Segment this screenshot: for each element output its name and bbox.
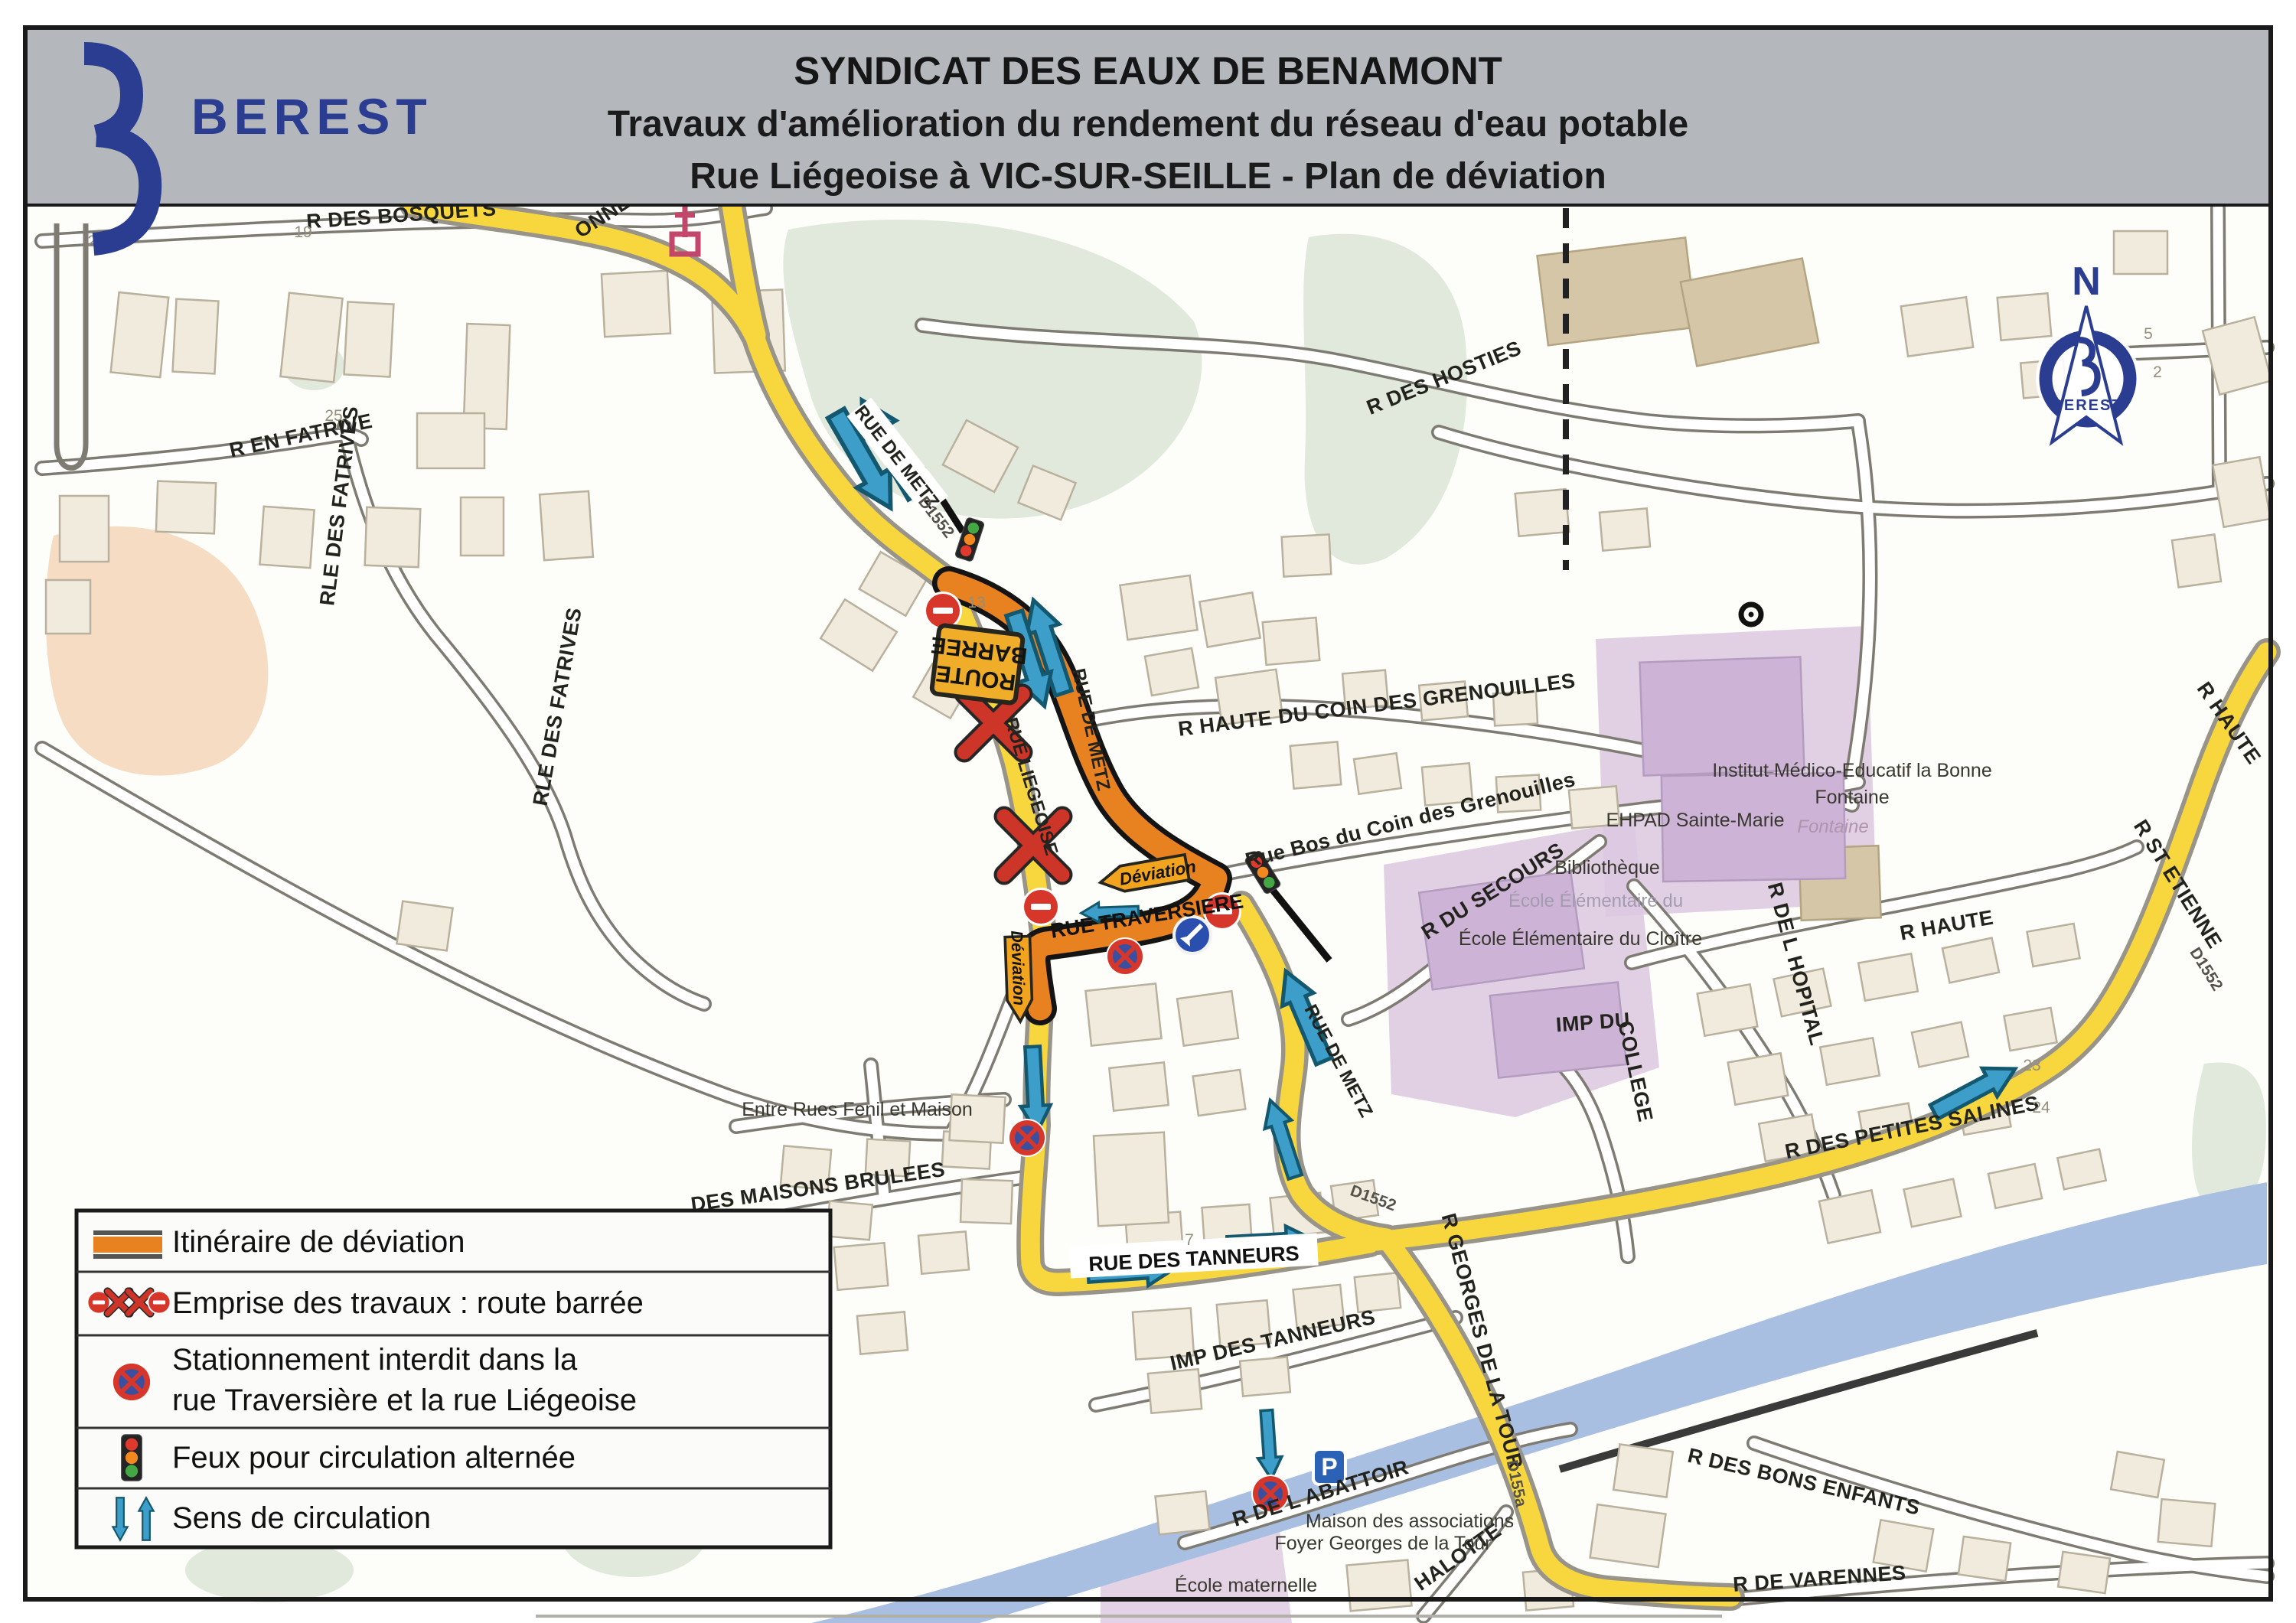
brand-text: BEREST [191,88,433,145]
svg-text:24: 24 [2032,1099,2050,1116]
svg-text:7: 7 [1185,1231,1194,1249]
deviation-map: ROUTE BARREE Déviation Déviation P R DES… [0,0,2296,1623]
svg-text:2: 2 [2153,363,2162,381]
place-label-maison-associations: Maison des associations [1306,1511,1514,1532]
place-label-fontaine-faint: Fontaine [1797,816,1868,837]
place-label-foyer-georges: Foyer Georges de la Tour [1274,1533,1491,1554]
svg-text:25: 25 [325,407,342,425]
legend-row3-label-line1: Stationnement interdit dans la [172,1343,578,1377]
title-line1: SYNDICAT DES EAUX DE BENAMONT [794,49,1502,93]
place-label-ecole-maternelle: École maternelle [1175,1574,1317,1596]
title-line3: Rue Liégeoise à VIC-SUR-SEILLE - Plan de… [690,156,1606,197]
legend-row2-label: Emprise des travaux : route barrée [172,1286,644,1320]
legend-row3-label-line2: rue Traversière et la rue Liégeoise [172,1383,637,1417]
place-label-entre-rues: Entre Rues Fenil et Maison [742,1099,973,1120]
place-label-ehpad: EHPAD Sainte-Marie [1606,810,1785,831]
place-label-ecole-faint: École Élémentaire du [1508,891,1683,911]
place-label-institut: Institut Médico-Educatif la Bonne [1712,760,1991,781]
legend-traffic-light-icon [122,1435,142,1481]
place-label-ecole-cloitre: École Élémentaire du Cloître [1459,927,1702,950]
legend-deviation-line-icon [93,1230,162,1259]
legend-no-parking-icon [112,1362,152,1403]
north-letter: N [2072,259,2101,304]
svg-text:5: 5 [2144,325,2153,343]
legend-box: Itinéraire de déviation Emprise des trav… [77,1211,830,1547]
legend-row5-label: Sens de circulation [172,1501,431,1535]
place-label-bibliotheque: Bibliothèque [1554,857,1660,878]
legend-row1-label: Itinéraire de déviation [172,1225,465,1259]
compass-brand-text: BEREST [2051,397,2122,414]
deviation-sign-text: Déviation [1007,930,1029,1006]
svg-text:13: 13 [967,594,985,611]
scanned-plan-page: ROUTE BARREE Déviation Déviation P R DES… [0,0,2296,1623]
place-label-fontaine: Fontaine [1815,787,1889,808]
svg-text:19: 19 [294,223,311,241]
title-line2: Travaux d'amélioration du rendement du r… [608,104,1689,145]
legend-row4-label: Feux pour circulation alternée [172,1441,576,1475]
berest-wordmark: BEREST [191,88,433,145]
svg-text:23: 23 [2023,1057,2040,1074]
route-barree-sign: ROUTE BARREE [925,624,1030,705]
